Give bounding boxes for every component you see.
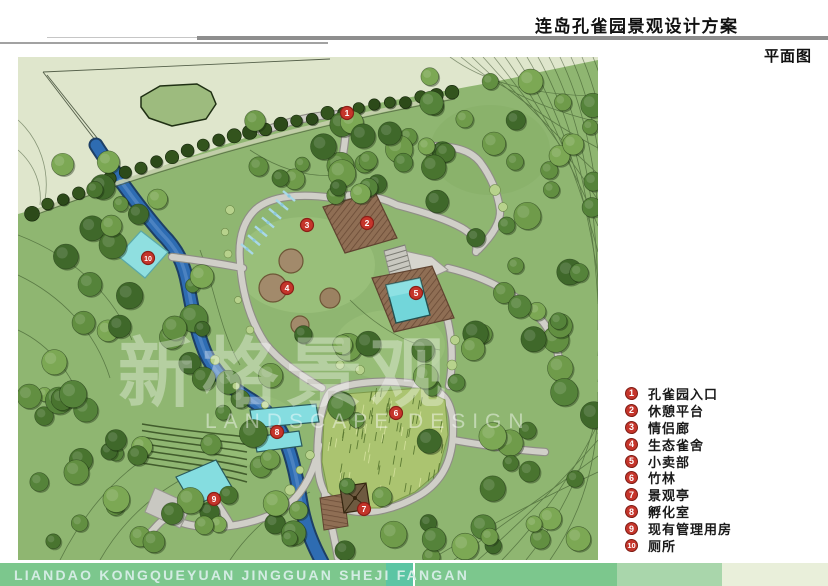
svg-text:2: 2: [365, 218, 370, 228]
legend-item: 4生态雀舍: [625, 436, 732, 453]
legend-item: 10厕所: [625, 537, 732, 554]
legend-marker-dot: 6: [625, 471, 638, 484]
svg-text:9: 9: [212, 494, 217, 504]
legend-marker-dot: 2: [625, 404, 638, 417]
legend-marker-dot: 8: [625, 505, 638, 518]
footer-seg-mid: [617, 563, 722, 586]
map-marker-6: 6: [390, 407, 403, 420]
pond: [141, 84, 216, 126]
legend-marker-dot: 3: [625, 421, 638, 434]
svg-text:3: 3: [305, 220, 310, 230]
svg-text:LANDSCAPE DESIGN: LANDSCAPE DESIGN: [205, 410, 531, 433]
svg-text:5: 5: [414, 288, 419, 298]
site-plan-map: 新格景观 LANDSCAPE DESIGN 12345678910: [18, 57, 598, 560]
sheet-subtitle: 平面图: [764, 45, 812, 66]
legend-marker-dot: 9: [625, 522, 638, 535]
map-marker-2: 2: [361, 217, 374, 230]
map-marker-5: 5: [410, 287, 423, 300]
legend-item-label: 厕所: [648, 536, 676, 555]
legend-marker-dot: 7: [625, 488, 638, 501]
legend-marker-dot: 5: [625, 455, 638, 468]
footer-seg-pale: [722, 563, 828, 586]
map-marker-7: 7: [358, 503, 371, 516]
legend-item: 9现有管理用房: [625, 520, 732, 537]
svg-text:新格景观: 新格景观: [118, 332, 454, 417]
footer-bar: LIANDAO KONGQUEYUAN JINGGUAN SHEJI FANGA…: [0, 563, 828, 586]
map-marker-10: 10: [142, 252, 155, 265]
svg-text:1: 1: [345, 108, 350, 118]
legend: 1孔雀园入口2休憩平台3情侣廊4生态雀舍5小卖部6竹林7景观亭8孵化室9现有管理…: [625, 385, 732, 554]
svg-text:4: 4: [285, 283, 290, 293]
legend-marker-dot: 1: [625, 387, 638, 400]
map-marker-8: 8: [271, 426, 284, 439]
page-title: 连岛孔雀园景观设计方案: [535, 12, 739, 37]
svg-text:7: 7: [362, 504, 367, 514]
legend-item: 3情侣廊: [625, 419, 732, 436]
legend-item: 8孵化室: [625, 503, 732, 520]
legend-item: 2休憩平台: [625, 402, 732, 419]
legend-item: 5小卖部: [625, 453, 732, 470]
legend-marker-dot: 4: [625, 438, 638, 451]
legend-item: 6竹林: [625, 469, 732, 486]
svg-text:10: 10: [144, 256, 152, 263]
svg-text:6: 6: [394, 408, 399, 418]
legend-item: 1孔雀园入口: [625, 385, 732, 402]
design-plan-sheet: 连岛孔雀园景观设计方案 平面图: [0, 0, 828, 586]
site-plan-svg: 新格景观 LANDSCAPE DESIGN 12345678910: [18, 57, 598, 560]
header-rule-thin: [47, 37, 199, 38]
header-rule-mid: [0, 42, 328, 44]
legend-item: 7景观亭: [625, 486, 732, 503]
svg-text:8: 8: [275, 427, 280, 437]
legend-marker-dot: 10: [625, 539, 638, 552]
footer-title: LIANDAO KONGQUEYUAN JINGGUAN SHEJI FANGA…: [14, 563, 469, 586]
map-marker-4: 4: [281, 282, 294, 295]
header-rule-thick: [197, 36, 828, 40]
map-marker-1: 1: [341, 107, 354, 120]
map-marker-3: 3: [301, 219, 314, 232]
map-marker-9: 9: [208, 493, 221, 506]
